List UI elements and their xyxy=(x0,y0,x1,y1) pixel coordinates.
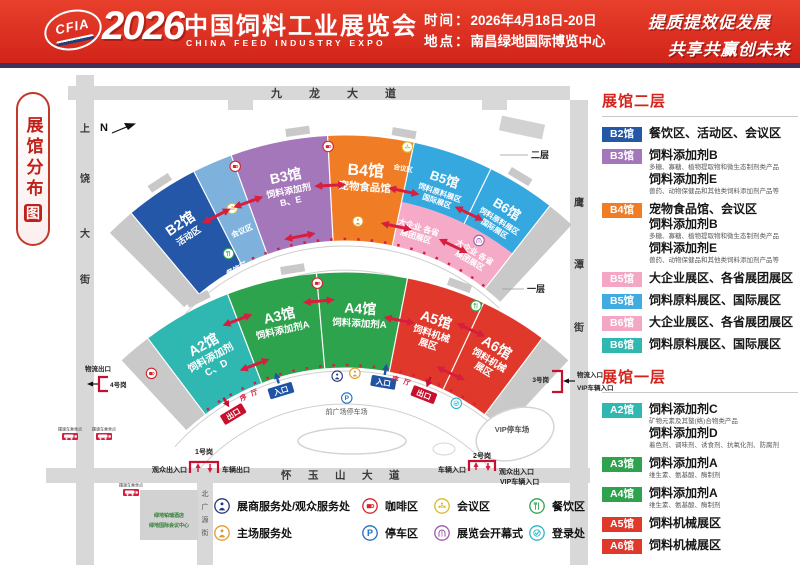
sidebar-item-A3馆: A3馆饲料添加剂A维生素、氨基酸、酶制剂 xyxy=(602,456,798,480)
parking-letter: P xyxy=(345,395,350,402)
floor1-items: A2馆饲料添加剂C矿物元素及其螯(络)合物类产品饲料添加剂D着色剂、调味剂、诱食… xyxy=(602,402,798,554)
sidebar-item-B5馆: B5馆饲料原料展区、国际展区 xyxy=(602,293,798,309)
floor2-title: 展馆二层 xyxy=(602,90,798,117)
map-label: 车辆出口 xyxy=(222,465,250,474)
sidebar-item-B4馆: B4馆宠物食品馆、会议区饲料添加剂B多糖、寡糖、植物提取物和微生态制剂类产品饲料… xyxy=(602,202,798,265)
map-label: 4号岗 xyxy=(110,380,127,389)
floor2-items: B2馆餐饮区、活动区、会议区B3馆饲料添加剂B多糖、寡糖、植物提取物和微生态制剂… xyxy=(602,126,798,353)
header: CFIA 2026 中国饲料工业展览会 CHINA FEED INDUSTRY … xyxy=(0,0,800,63)
hotel-label: 绿地铂瑞酒店 xyxy=(154,512,184,519)
map-label: VIP车辆入口 xyxy=(500,477,539,486)
hall-desc: 饲料原料展区、国际展区 xyxy=(649,337,798,352)
coffee-icon xyxy=(146,368,156,378)
entrance-canopy xyxy=(280,263,305,275)
legend-label: 展览会开幕式 xyxy=(457,525,523,541)
street-label-left: 大 xyxy=(80,227,90,240)
hall-subdesc: 多糖、寡糖、植物提取物和微生态制剂类产品 xyxy=(649,232,798,241)
hall-badge: A3馆 xyxy=(602,457,642,472)
service-blue-icon xyxy=(213,497,231,515)
gate1-label: 1号岗 xyxy=(195,447,213,456)
coffee-icon xyxy=(230,161,240,171)
hall-badge: A4馆 xyxy=(602,487,642,502)
hall-badge: B5馆 xyxy=(602,272,642,287)
legend-label: 会议区 xyxy=(457,498,490,514)
sidebar-item-B2馆: B2馆餐饮区、活动区、会议区 xyxy=(602,126,798,142)
legend-item-coffee: 咖啡区 xyxy=(361,497,433,515)
legend-item-dining: 餐饮区 xyxy=(528,497,608,515)
floor1-pointer: 一层 xyxy=(527,284,545,294)
street xyxy=(228,100,253,110)
hall-badge: B6馆 xyxy=(602,316,642,331)
hall-desc: 饲料机械展区 xyxy=(649,538,798,553)
slogan-line2: 共享共赢创未来 xyxy=(668,36,791,60)
coffee-icon xyxy=(361,497,379,515)
street-label-top: 九龙大道 xyxy=(270,86,423,100)
building xyxy=(499,116,545,140)
street-label-bottom-left: 北 xyxy=(202,490,209,498)
floor1-title: 展馆一层 xyxy=(602,366,798,393)
map-label: 物流入口 xyxy=(577,370,603,379)
hall-subdesc: 兽药、动物保健品和其他类饲料添加剂产品等 xyxy=(649,187,798,196)
symbol-legend: 展商服务处/观众服务处咖啡区会议区餐饮区主场服务处P停车区展览会开幕式登录处 xyxy=(213,497,608,542)
street-label-bottom-left: 广 xyxy=(202,502,209,511)
expo-meta: 时间：2026年4月18日-20日 地点：南昌绿地国际博览中心 xyxy=(424,10,606,52)
service-orange-icon xyxy=(215,526,229,540)
hall-desc: 饲料原料展区、国际展区 xyxy=(649,293,798,308)
logo-text: CFIA xyxy=(54,16,91,38)
ceremony-icon xyxy=(433,524,451,542)
sidebar-item-A4馆: A4馆饲料添加剂A维生素、氨基酸、酶制剂 xyxy=(602,486,798,510)
gate3-label: 3号岗 xyxy=(532,375,549,384)
dining-icon xyxy=(471,301,481,311)
service-blue-icon xyxy=(332,371,342,381)
hall-badge: B3馆 xyxy=(602,149,642,164)
hall-badge: B4馆 xyxy=(602,203,642,218)
cfia-logo: CFIA xyxy=(40,4,105,55)
shuttle-caption: 摆渡车乘坐点 xyxy=(92,426,116,432)
dining-icon xyxy=(530,499,544,513)
legend-item-registration: 登录处 xyxy=(528,524,608,542)
parking-letter: P xyxy=(367,528,373,538)
hall-subdesc: 维生素、氨基酸、酶制剂 xyxy=(649,471,798,480)
shuttle-bus-icon xyxy=(62,433,78,440)
legend-label: 主场服务处 xyxy=(237,525,292,541)
hall-desc: 饲料添加剂E xyxy=(649,172,798,187)
shuttle-bus-icon xyxy=(123,489,139,496)
legend-label: 停车区 xyxy=(385,525,418,541)
hall-subdesc: 矿物元素及其螯(络)合物类产品 xyxy=(649,417,798,426)
hall-desc: 饲料添加剂E xyxy=(649,241,798,256)
hall-badge: B5馆 xyxy=(602,294,642,309)
map-label: 车辆入口 xyxy=(438,465,466,474)
sidebar-item-B6馆: B6馆大企业展区、各省展团展区 xyxy=(602,315,798,331)
dining-icon xyxy=(223,248,233,258)
street-label-left: 饶 xyxy=(80,172,90,185)
hall-desc: 大企业展区、各省展团展区 xyxy=(649,315,798,330)
entrance-canopy xyxy=(285,126,310,137)
legend-label: 展商服务处/观众服务处 xyxy=(237,498,350,514)
plaza-pond xyxy=(298,428,406,454)
legend-label: 咖啡区 xyxy=(385,498,418,514)
hall-desc: 饲料机械展区 xyxy=(649,516,798,531)
hall-badge: B2馆 xyxy=(602,127,642,142)
legend-item-parking: P停车区 xyxy=(361,524,433,542)
sidebar-item-A5馆: A5馆饲料机械展区 xyxy=(602,516,798,532)
sidebar-item-A2馆: A2馆饲料添加剂C矿物元素及其螯(络)合物类产品饲料添加剂D着色剂、调味剂、诱食… xyxy=(602,402,798,450)
expo-floorplan-page: CFIA 2026 中国饲料工业展览会 CHINA FEED INDUSTRY … xyxy=(0,0,800,565)
meeting-icon xyxy=(433,497,451,515)
hall-badge: B6馆 xyxy=(602,338,642,353)
cap xyxy=(147,254,165,271)
parking-icon: P xyxy=(361,524,379,542)
cap xyxy=(154,376,177,395)
parking-icon: P xyxy=(363,526,377,540)
hall-subdesc: 着色剂、调味剂、诱食剂、抗氧化剂、防腐剂 xyxy=(649,441,798,450)
map-title-text: 展馆分布 xyxy=(21,116,46,200)
gate4-bracket xyxy=(99,377,108,391)
hall-desc: 饲料添加剂A xyxy=(649,456,798,471)
vip-parking-label: VIP停车场 xyxy=(495,424,530,434)
street-label-right: 潭 xyxy=(574,258,584,271)
legend-label: 餐饮区 xyxy=(552,498,585,514)
plaza-pond xyxy=(433,443,455,455)
slogan-line1: 提质提效促发展 xyxy=(648,14,771,32)
entrance-canopy xyxy=(392,127,417,139)
hall-desc: 宠物食品馆、会议区 xyxy=(649,202,798,217)
street-label-bottom-left: 街 xyxy=(202,528,209,537)
expo-year: 2026 xyxy=(102,4,183,49)
hall-badge: A2馆 xyxy=(602,403,642,418)
ceremony-icon xyxy=(435,526,449,540)
hall-desc: 大企业展区、各省展团展区 xyxy=(649,271,798,286)
ceremony-icon xyxy=(474,235,484,245)
dining-icon xyxy=(528,497,546,515)
venue-value: 南昌绿地国际博览中心 xyxy=(471,34,606,49)
meeting-icon xyxy=(402,142,412,152)
expo-slogan: 提质提效促发展 共享共赢创未来 xyxy=(648,9,791,60)
expo-title-cn: 中国饲料工业展览会 xyxy=(184,6,418,41)
hall-subdesc: 兽药、动物保健品和其他类饲料添加剂产品等 xyxy=(649,256,798,265)
coffee-icon xyxy=(312,278,322,288)
plaza-parking-label: 前广场停车场 xyxy=(326,407,368,416)
street-label-bottom: 怀玉山大道 xyxy=(281,469,416,482)
hotel-label: 绿地国际会议中心 xyxy=(149,522,189,529)
street-label-left: 街 xyxy=(79,273,90,286)
legend-label: 登录处 xyxy=(552,525,585,541)
registration-icon xyxy=(528,524,546,542)
street-label-right: 鹰 xyxy=(574,196,584,209)
map-title-boxed: 图 xyxy=(24,204,42,222)
compass-n: N xyxy=(100,122,108,134)
street-label-bottom-left: 源 xyxy=(202,515,209,524)
street-label-left: 上 xyxy=(80,122,90,135)
map-title-pill: 展馆分布 图 xyxy=(16,92,50,246)
street xyxy=(482,100,507,110)
coffee-icon xyxy=(323,141,333,151)
map-label: 观众出入口 xyxy=(152,465,187,474)
gate2-label: 2号岗 xyxy=(473,451,491,460)
hall-legend-sidebar: 展馆二层 B2馆餐饮区、活动区、会议区B3馆饲料添加剂B多糖、寡糖、植物提取物和… xyxy=(602,90,798,560)
venue-label: 地点： xyxy=(424,34,471,49)
registration-icon xyxy=(451,398,461,408)
map-label: 观众出入口 xyxy=(499,467,534,476)
map-label: B4馆 xyxy=(347,159,385,180)
map-label: 入口 xyxy=(272,384,290,397)
hall-desc: 饲料添加剂A xyxy=(649,486,798,501)
parking-icon: P xyxy=(342,393,352,403)
sidebar-item-B3馆: B3馆饲料添加剂B多糖、寡糖、植物提取物和微生态制剂类产品饲料添加剂E兽药、动物… xyxy=(602,148,798,196)
service-orange-icon xyxy=(353,216,363,226)
hall-badge: A6馆 xyxy=(602,539,642,554)
shuttle-caption: 摆渡车乘坐点 xyxy=(119,482,143,488)
service-orange-icon xyxy=(350,368,360,378)
street xyxy=(76,483,94,565)
hall-subdesc: 维生素、氨基酸、酶制剂 xyxy=(649,501,798,510)
coffee-icon xyxy=(363,499,377,513)
hall-desc: 餐饮区、活动区、会议区 xyxy=(649,126,798,141)
shuttle-bus-icon xyxy=(96,433,112,440)
legend-item-meeting: 会议区 xyxy=(433,497,528,515)
hall-badge: A5馆 xyxy=(602,517,642,532)
street-label-right: 街 xyxy=(573,321,584,334)
hall-desc: 饲料添加剂B xyxy=(649,217,798,232)
compass-arrow-icon xyxy=(124,123,136,130)
meeting-icon xyxy=(435,499,449,513)
hall-desc: 饲料添加剂C xyxy=(649,402,798,417)
legend-item-ceremony: 展览会开幕式 xyxy=(433,524,528,542)
floor2-pointer: 二层 xyxy=(531,150,549,160)
hall-desc: 饲料添加剂B xyxy=(649,148,798,163)
registration-icon xyxy=(530,526,544,540)
hall-desc: 饲料添加剂D xyxy=(649,426,798,441)
service-orange-icon xyxy=(213,524,231,542)
main-area: 九龙大道怀玉山大道上饶大街鹰潭街北广源街NB2馆活动区B3馆饲料添加剂B、EB4… xyxy=(0,68,800,565)
map-label: A4馆 xyxy=(344,300,377,318)
sidebar-item-A6馆: A6馆饲料机械展区 xyxy=(602,538,798,554)
legend-item-service-orange: 主场服务处 xyxy=(213,524,361,542)
sidebar-item-B5馆: B5馆大企业展区、各省展团展区 xyxy=(602,271,798,287)
expo-title-en: CHINA FEED INDUSTRY EXPO xyxy=(186,38,386,48)
service-blue-icon xyxy=(215,499,229,513)
legend-item-service-blue: 展商服务处/观众服务处 xyxy=(213,497,361,515)
hall-subdesc: 多糖、寡糖、植物提取物和微生态制剂类产品 xyxy=(649,163,798,172)
time-value: 2026年4月18日-20日 xyxy=(471,13,597,28)
sidebar-item-B6馆: B6馆饲料原料展区、国际展区 xyxy=(602,337,798,353)
shuttle-caption: 摆渡车乘坐点 xyxy=(58,426,82,432)
cap xyxy=(517,247,536,263)
time-label: 时间： xyxy=(424,13,471,28)
gate4-label: 物流出口 xyxy=(85,364,111,373)
